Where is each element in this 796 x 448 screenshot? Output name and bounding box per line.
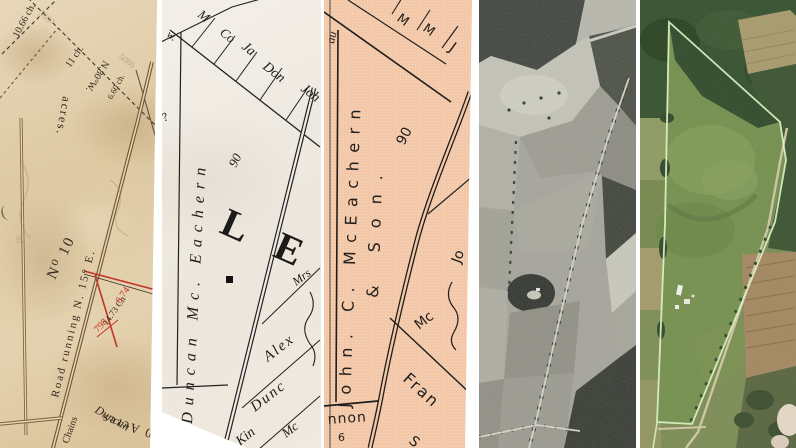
panel-survey-plat: 10.66 ch. 11 ch. N.80°W. 6.60 ch. acres.… [0, 0, 160, 448]
photo-grain [640, 0, 796, 448]
panel-color-aerial-photo [640, 0, 796, 448]
owner-name-label: Alex [260, 331, 298, 366]
pencil-scribble: 92 [14, 235, 25, 246]
plat-labels: M M J 90 John. C. McEachern & Son. Jo au… [324, 11, 468, 448]
acreage-label: 90 [393, 125, 415, 148]
strip-parcel-label: M [420, 21, 438, 40]
panel-bw-aerial-photo [479, 0, 636, 448]
owner-name-label: Dunc [247, 378, 290, 416]
road-name-fragment: nnon [327, 409, 367, 428]
creek-line [305, 292, 315, 366]
cut-off-label: Jo [448, 248, 468, 266]
owner-name-label: Mc [412, 308, 437, 333]
number-label: 6 [338, 431, 345, 444]
owner-name-label: Kin [232, 425, 258, 448]
map-comparison-strip: 10.66 ch. 11 ch. N.80°W. 6.60 ch. acres.… [0, 0, 796, 448]
strip-parcel-label: Co [217, 25, 239, 46]
parcel-west-boundary [177, 32, 181, 385]
owner-name-label: Mc [278, 418, 301, 441]
owner-name-label: Fran [399, 369, 443, 412]
strip-parcel-label: Ja [239, 39, 259, 59]
strip-parcel-label: Joh [298, 81, 321, 105]
cut-off-label: S [405, 433, 422, 448]
cut-off-label: ? [162, 109, 171, 124]
panel-printed-plat: M M J 90 John. C. McEachern & Son. Jo au… [324, 0, 473, 448]
panel-county-atlas: M Co Ja Don Joh w. ? Duncan Mc. Eachern … [162, 0, 321, 448]
creek-line [448, 282, 458, 350]
cut-off-label: w. [164, 29, 178, 44]
owner-name-label: John. C. McEachern [335, 101, 365, 410]
house-symbol [226, 276, 233, 283]
photo-grain [479, 0, 636, 448]
owner-name-label: & Son. [363, 161, 387, 298]
cut-off-label: au [324, 30, 339, 45]
acreage-label: 90 [225, 151, 244, 170]
strip-parcel-label: Don [259, 59, 288, 86]
strip-parcel-label: M [394, 11, 412, 30]
